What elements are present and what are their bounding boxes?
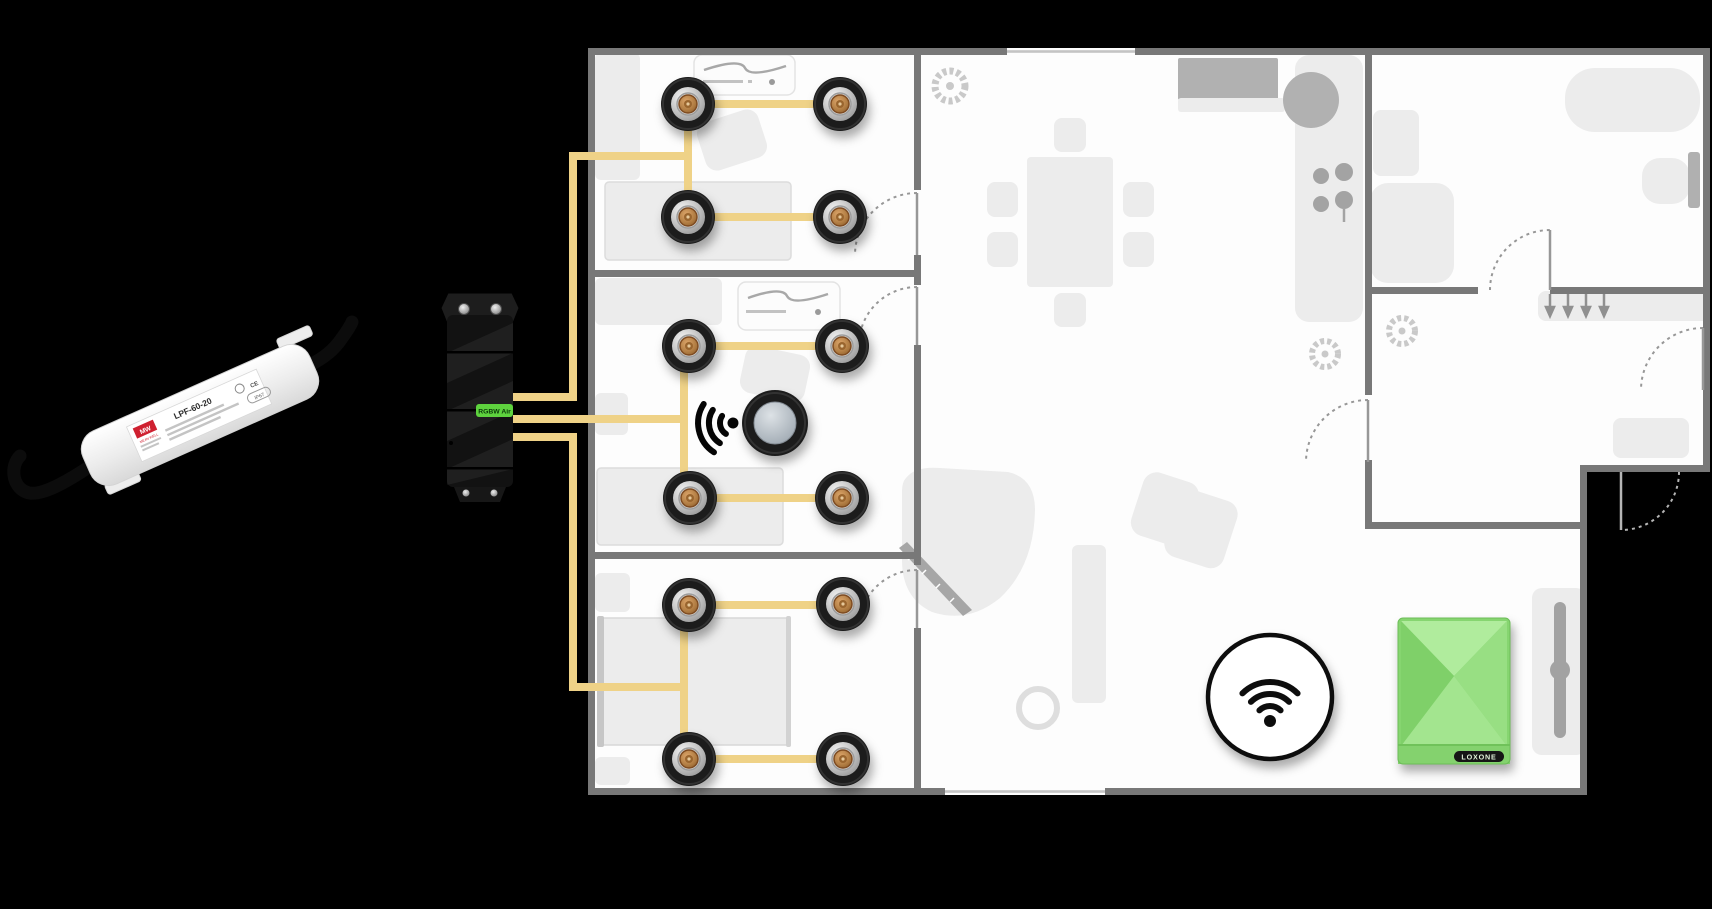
wall bbox=[588, 270, 917, 277]
dimmer-label: RGBW Air bbox=[478, 409, 511, 416]
nightstand bbox=[595, 573, 630, 612]
chair bbox=[987, 232, 1018, 267]
wall bbox=[1365, 48, 1372, 395]
cooktop-burner bbox=[1313, 196, 1329, 212]
bed-footboard bbox=[786, 616, 791, 747]
ceiling-fan-box bbox=[738, 282, 840, 330]
wall bbox=[1583, 465, 1710, 472]
diagram-stage: LOXONE RGBW Air MW MEAN WELL LPF- bbox=[0, 0, 1712, 909]
chair bbox=[1123, 232, 1154, 267]
wall bbox=[1580, 465, 1587, 795]
wall bbox=[1550, 287, 1710, 294]
power-cable bbox=[308, 322, 352, 366]
chair bbox=[1123, 182, 1154, 217]
kitchen-counter-top bbox=[1178, 58, 1278, 100]
wall bbox=[914, 345, 921, 565]
wifi-icon bbox=[1208, 635, 1332, 759]
wall bbox=[1365, 287, 1478, 294]
spotlight bbox=[661, 77, 715, 131]
toilet-bowl bbox=[1642, 158, 1690, 204]
bed bbox=[600, 618, 790, 745]
screw-icon bbox=[463, 490, 470, 497]
cooktop-burner bbox=[1335, 163, 1353, 181]
power-cable bbox=[14, 456, 92, 493]
chair bbox=[987, 182, 1018, 217]
bathtub bbox=[1565, 68, 1700, 132]
power-supply: MW MEAN WELL LPF-60-20 CE IP67 bbox=[14, 322, 352, 498]
window-glass bbox=[945, 790, 1105, 793]
washing-machine bbox=[1373, 110, 1419, 176]
presence-sensor bbox=[742, 390, 808, 456]
spotlight bbox=[815, 319, 869, 373]
nightstand bbox=[595, 757, 630, 785]
sideboard bbox=[1613, 418, 1689, 458]
scene-svg: LOXONE RGBW Air MW MEAN WELL LPF- bbox=[0, 0, 1712, 909]
chair bbox=[1054, 118, 1086, 152]
wall bbox=[1365, 460, 1372, 529]
rgbw-dimmer: RGBW Air bbox=[441, 293, 519, 502]
bed-headboard bbox=[597, 616, 604, 747]
spotlight bbox=[813, 77, 867, 131]
spotlight bbox=[663, 471, 717, 525]
exterior-notch bbox=[1587, 472, 1710, 795]
spotlight bbox=[662, 578, 716, 632]
toilet-tank bbox=[1688, 152, 1700, 208]
kitchen-sink bbox=[1283, 72, 1339, 128]
dining-table bbox=[1027, 157, 1113, 287]
wall bbox=[1703, 48, 1710, 472]
miniserver-badge-label: LOXONE bbox=[1461, 753, 1496, 762]
spotlight bbox=[815, 471, 869, 525]
nightstand bbox=[595, 393, 628, 435]
wall bbox=[588, 552, 917, 559]
wall bbox=[914, 48, 921, 190]
screw-icon bbox=[459, 304, 470, 315]
miniserver: LOXONE bbox=[1398, 618, 1510, 764]
chair bbox=[1054, 293, 1086, 327]
wardrobe bbox=[595, 53, 640, 180]
kitchen-counter bbox=[1178, 98, 1285, 112]
spotlight bbox=[662, 319, 716, 373]
cooktop-burner bbox=[1313, 168, 1329, 184]
spotlight bbox=[816, 577, 870, 631]
dresser bbox=[595, 278, 722, 325]
cooktop-burner bbox=[1335, 191, 1353, 209]
wardrobe-knob bbox=[1550, 660, 1570, 680]
wall bbox=[914, 628, 921, 795]
screw-icon bbox=[491, 304, 502, 315]
wall bbox=[1365, 522, 1587, 529]
spotlight bbox=[816, 732, 870, 786]
shelf bbox=[1072, 545, 1106, 703]
spotlight bbox=[813, 190, 867, 244]
spotlight bbox=[662, 732, 716, 786]
bathroom-cabinet bbox=[1370, 183, 1454, 283]
wall bbox=[588, 48, 1710, 55]
window-glass bbox=[1007, 50, 1135, 53]
screw-icon bbox=[491, 490, 498, 497]
spotlight bbox=[661, 190, 715, 244]
